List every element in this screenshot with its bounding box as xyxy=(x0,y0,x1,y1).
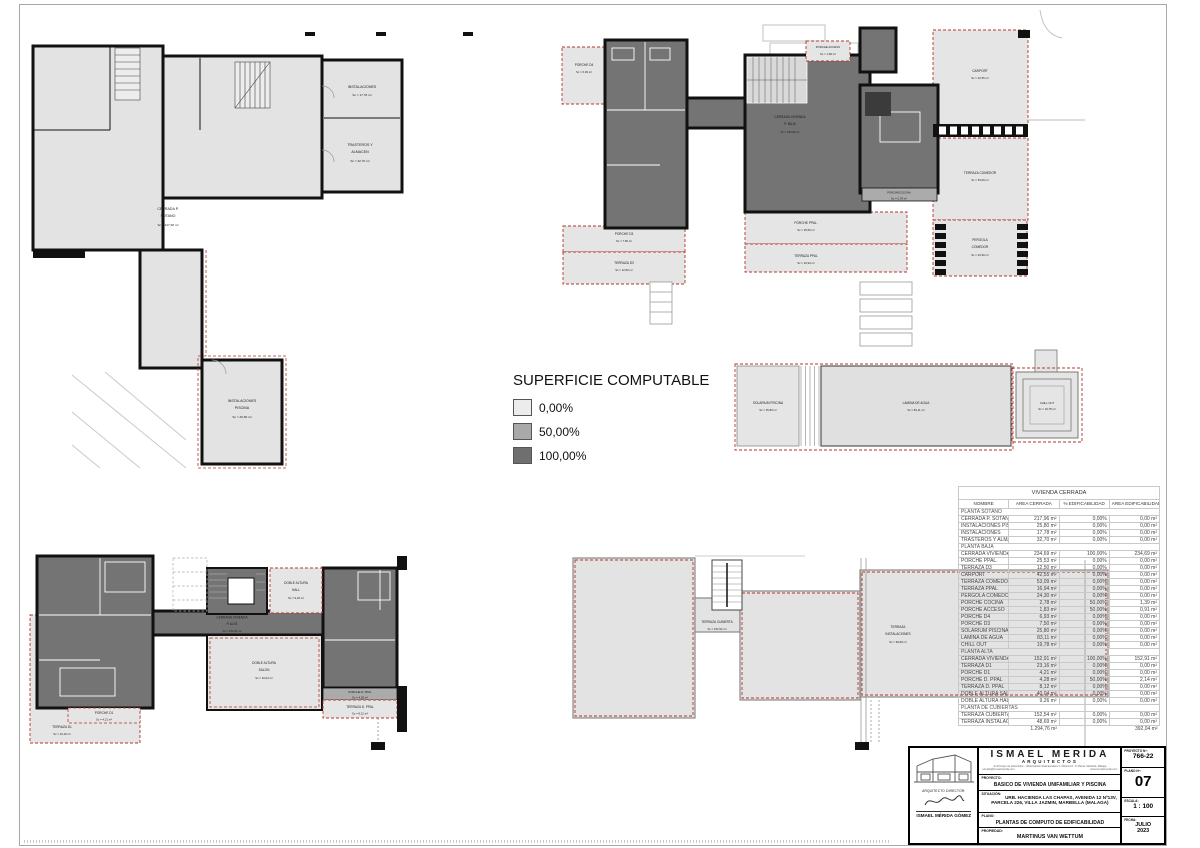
legend-title: SUPERFICIE COMPUTABLE xyxy=(513,372,709,389)
cell-edif: 0,00 m² xyxy=(1109,712,1159,719)
room-label-cerrada-sotano: CERRADA P. SOTANO Sc = 217,96 m² xyxy=(157,207,178,227)
cell-edif: 0,00 m² xyxy=(1109,530,1159,537)
svg-text:TRASTEROS Y: TRASTEROS Y xyxy=(347,143,373,147)
cell-name: TERRAZA D1 xyxy=(959,663,1009,670)
legend: SUPERFICIE COMPUTABLE 0,00% 50,00% 100,0… xyxy=(513,372,709,471)
cell-name: INSTALACIONES PISCINA xyxy=(959,523,1009,530)
table-row: PORCHE COCINA 2,78 m² 50,00% 1,39 m² xyxy=(959,600,1160,607)
cell-pct: 0,00% xyxy=(1059,698,1109,705)
svg-text:TERRAZA: TERRAZA xyxy=(891,625,907,629)
pool xyxy=(735,350,1082,450)
plano-num: 07 xyxy=(1122,773,1164,790)
svg-text:Sc = 152,91 m²: Sc = 152,91 m² xyxy=(222,629,241,633)
cell-area: 24,30 m² xyxy=(1009,593,1059,600)
firm-web: www.ismaelmerida.com xyxy=(1090,768,1117,771)
col-area-cerrada: AREA CERRADA xyxy=(1009,500,1059,509)
cell-edif: 0,00 m² xyxy=(1109,663,1159,670)
table-row: PORCHE D. PPAL 4,28 m² 50,00% 2,14 m² xyxy=(959,677,1160,684)
table-row: PORCHE D4 6,93 m² 0,00% 0,00 m² xyxy=(959,614,1160,621)
svg-text:Sc = 19,78 m²: Sc = 19,78 m² xyxy=(1038,407,1056,411)
svg-text:PORCHE D1: PORCHE D1 xyxy=(95,711,114,715)
table-row: CARPORT 42,55 m² 0,00% 0,00 m² xyxy=(959,572,1160,579)
cell-pct: 0,00% xyxy=(1059,691,1109,698)
svg-text:Sc = 4,21 m²: Sc = 4,21 m² xyxy=(96,718,112,722)
svg-text:Sc = 32,70 m²: Sc = 32,70 m² xyxy=(350,159,369,163)
drawing-sheet: CERRADA P. SOTANO Sc = 217,96 m² INSTALA… xyxy=(0,0,1200,848)
svg-text:Sc = 2,78 m²: Sc = 2,78 m² xyxy=(891,197,907,201)
cell-area: 12,50 m² xyxy=(1009,565,1059,572)
svg-text:PERGOLA: PERGOLA xyxy=(972,238,988,242)
firm-email: estudio@ismaelmerida.com xyxy=(982,768,1014,771)
svg-text:Sc = 6,93 m²: Sc = 6,93 m² xyxy=(576,70,592,74)
proyecto-row: PROYECTO: BASICO DE VIVIENDA UNIFAMILIAR… xyxy=(979,775,1120,791)
cell-area: 2,78 m² xyxy=(1009,600,1059,607)
sheet-footnote-microtext xyxy=(24,840,890,843)
cell-pct: 0,00% xyxy=(1059,712,1109,719)
cell-name: TRASTEROS Y ALMACEN xyxy=(959,537,1009,544)
svg-text:PORCHE ACCESO: PORCHE ACCESO xyxy=(816,45,841,49)
cell-name: TERRAZA D3 xyxy=(959,565,1009,572)
svg-text:INSTALACIONES: INSTALACIONES xyxy=(348,85,377,89)
cell-edif: 0,00 m² xyxy=(1109,537,1159,544)
col-pct-edificabilidad: % EDIFICABILIDAD xyxy=(1059,500,1109,509)
cell-pct: 0,00% xyxy=(1059,516,1109,523)
table-row: TERRAZA INSTALACIONES 48,69 m² 0,00% 0,0… xyxy=(959,719,1160,726)
cell-area: 25,53 m² xyxy=(1009,558,1059,565)
legend-item-100: 100,00% xyxy=(513,447,709,464)
table-row: TERRAZA D3 12,50 m² 0,00% 0,00 m² xyxy=(959,565,1160,572)
cell-name: PORCHE D4 xyxy=(959,614,1009,621)
cell-pct: 0,00% xyxy=(1059,558,1109,565)
cell-name: PORCHE D3 xyxy=(959,621,1009,628)
cell-pct: 0,00% xyxy=(1059,614,1109,621)
cell-edif: 1,39 m² xyxy=(1109,600,1159,607)
table-row: TERRAZA COMEDOR 53,09 m² 0,00% 0,00 m² xyxy=(959,579,1160,586)
legend-label: 0,00% xyxy=(539,401,573,415)
cell-name: CERRADA VIVIENDA P. BAJA xyxy=(959,551,1009,558)
cell-edif: 0,91 m² xyxy=(1109,607,1159,614)
svg-text:Sc = 7,50 m²: Sc = 7,50 m² xyxy=(616,239,632,243)
cell-area: 23,16 m² xyxy=(1009,663,1059,670)
svg-text:Sc = 24,30 m²: Sc = 24,30 m² xyxy=(971,253,989,257)
svg-text:PISCINA: PISCINA xyxy=(235,406,250,410)
section-row-baja: PLANTA BAJA xyxy=(959,544,1160,551)
svg-text:DOBLE ALTURA: DOBLE ALTURA xyxy=(252,661,277,665)
cell-edif: 0,00 m² xyxy=(1109,586,1159,593)
legend-swatch-0pct xyxy=(513,399,532,416)
cell-pct: 0,00% xyxy=(1059,593,1109,600)
cell-edif: 0,00 m² xyxy=(1109,558,1159,565)
cell-pct: 0,00% xyxy=(1059,663,1109,670)
svg-text:PORCHE D3: PORCHE D3 xyxy=(615,232,634,236)
cell-name: PORCHE ACCESO xyxy=(959,607,1009,614)
cell-edif: 0,00 m² xyxy=(1109,719,1159,726)
cell-pct: 0,00% xyxy=(1059,642,1109,649)
section-name: PLANTA BAJA xyxy=(959,544,1160,551)
propiedad-label: PROPIEDAD: xyxy=(981,829,1002,833)
garden-steps xyxy=(650,282,912,346)
legend-label: 50,00% xyxy=(539,425,580,439)
legend-label: 100,00% xyxy=(539,449,586,463)
ghost-stair xyxy=(173,558,207,611)
svg-text:CHILL OUT: CHILL OUT xyxy=(1040,401,1055,405)
legend-swatch-50pct xyxy=(513,423,532,440)
cell-name: LAMINA DE AGUA xyxy=(959,635,1009,642)
svg-text:HALL: HALL xyxy=(292,588,300,592)
table-row: PORCHE PPAL. 25,53 m² 0,00% 0,00 m² xyxy=(959,558,1160,565)
situacion-label: SITUACIÓN: xyxy=(981,792,1001,796)
cell-area: 7,50 m² xyxy=(1009,621,1059,628)
architect-panel: ARQUITECTO DIRECTOR: ISMAEL MÉRIDA GÓMEZ xyxy=(910,748,979,843)
situacion-row: SITUACIÓN: URB. HACIENDA LAS CHAPAS, AVE… xyxy=(979,791,1120,813)
table-row: CERRADA VIVIENDA P. ALTA 152,91 m² 100,0… xyxy=(959,656,1160,663)
svg-text:Sc = 9,26 m²: Sc = 9,26 m² xyxy=(288,596,304,600)
svg-text:Sc = 53,09 m²: Sc = 53,09 m² xyxy=(971,178,989,182)
cell-edif: 0,00 m² xyxy=(1109,635,1159,642)
cell-edif: 0,00 m² xyxy=(1109,691,1159,698)
svg-text:PORCHE D. PPAL: PORCHE D. PPAL xyxy=(348,690,372,694)
carport-beam xyxy=(933,124,1028,137)
cell-pct: 0,00% xyxy=(1059,572,1109,579)
svg-text:DOBLE ALTURA: DOBLE ALTURA xyxy=(284,581,309,585)
proyecto-label: PROYECTO: xyxy=(981,776,1001,780)
table-row: TERRAZA D1 23,16 m² 0,00% 0,00 m² xyxy=(959,663,1160,670)
cell-pct: 0,00% xyxy=(1059,621,1109,628)
plan-alta: DOBLE ALTURA HALL Sc = 9,26 m² CERRADA V… xyxy=(25,548,445,750)
cell-pct: 0,00% xyxy=(1059,565,1109,572)
svg-text:LAMINA DE AGUA: LAMINA DE AGUA xyxy=(903,401,931,405)
computable-area-table: VIVIENDA CERRADA NOMBRE AREA CERRADA % E… xyxy=(958,486,1160,732)
cell-edif: 234,69 m² xyxy=(1109,551,1159,558)
project-info-panel: ISMAEL MERIDA ARQUITECTOS Av.Príncipe de… xyxy=(979,748,1120,843)
table-row: DOBLE ALTURA SALON 40,04 m² 0,00% 0,00 m… xyxy=(959,691,1160,698)
cell-name: TERRAZA COMEDOR xyxy=(959,579,1009,586)
cell-edif: 0,00 m² xyxy=(1109,621,1159,628)
proyecto-num: 766-22 xyxy=(1122,753,1164,760)
fireplace xyxy=(865,92,891,116)
section-row-sotano: PLANTA SOTANO xyxy=(959,509,1160,516)
table-row: INSTALACIONES 17,78 m² 0,00% 0,00 m² xyxy=(959,530,1160,537)
cell-area: 8,12 m² xyxy=(1009,684,1059,691)
architect-name: ISMAEL MÉRIDA GÓMEZ xyxy=(916,811,971,818)
cell-name: PORCHE D1 xyxy=(959,670,1009,677)
cell-edif: 0,00 m² xyxy=(1109,565,1159,572)
cell-pct: 50,00% xyxy=(1059,607,1109,614)
svg-text:CERRADA VIVIENDA: CERRADA VIVIENDA xyxy=(216,616,248,620)
table-row: PERGOLA COMEDOR 24,30 m² 0,00% 0,00 m² xyxy=(959,593,1160,600)
cell-edif: 0,00 m² xyxy=(1109,628,1159,635)
section-row-cubiertas: PLANTA DE CUBIERTAS xyxy=(959,705,1160,712)
cell-area: 6,93 m² xyxy=(1009,614,1059,621)
sheet-meta-panel: PROYECTO Nº: 766-22 PLANO Nº: 07 ESCALA:… xyxy=(1120,748,1164,843)
cell-area: 4,21 m² xyxy=(1009,670,1059,677)
cell-edif: 0,00 m² xyxy=(1109,593,1159,600)
cell-pct: 0,00% xyxy=(1059,523,1109,530)
cell-edif: 0,00 m² xyxy=(1109,698,1159,705)
total-spacer xyxy=(959,726,1009,733)
svg-text:Sc = 1,83 m²: Sc = 1,83 m² xyxy=(820,52,836,56)
svg-text:SALON: SALON xyxy=(259,668,271,672)
svg-text:PORCHE/COCINA: PORCHE/COCINA xyxy=(887,191,911,195)
plano-row: PLANO: PLANTAS DE COMPUTO DE EDIFICABILI… xyxy=(979,813,1120,828)
svg-text:TERRAZA D3: TERRAZA D3 xyxy=(614,261,634,265)
cell-name: TERRAZA PPAL xyxy=(959,586,1009,593)
cell-area: 32,70 m² xyxy=(1009,537,1059,544)
cell-pct: 0,00% xyxy=(1059,579,1109,586)
wall-stubs xyxy=(855,742,869,750)
propiedad-row: PROPIEDAD: MARTINUS VAN WETTUM xyxy=(979,828,1120,843)
table-row: TERRAZA CUBIERTA 152,54 m² 0,00% 0,00 m² xyxy=(959,712,1160,719)
table-row: PORCHE D1 4,21 m² 0,00% 0,00 m² xyxy=(959,670,1160,677)
cell-edif: 152,91 m² xyxy=(1109,656,1159,663)
cell-edif: 0,00 m² xyxy=(1109,684,1159,691)
cell-area: 9,26 m² xyxy=(1009,698,1059,705)
legend-swatch-100pct xyxy=(513,447,532,464)
cell-name: PORCHE PPAL. xyxy=(959,558,1009,565)
cell-area: 152,54 m² xyxy=(1009,712,1059,719)
table-row: PORCHE ACCESO 1,83 m² 50,00% 0,91 m² xyxy=(959,607,1160,614)
svg-text:Sc = 4,28 m²: Sc = 4,28 m² xyxy=(352,696,368,700)
cell-name: TERRAZA CUBIERTA xyxy=(959,712,1009,719)
table-row: CERRADA P. SOTANO 217,96 m² 0,00% 0,00 m… xyxy=(959,516,1160,523)
legend-item-0: 0,00% xyxy=(513,399,709,416)
stairs-icon xyxy=(207,568,267,614)
svg-text:P. BAJA: P. BAJA xyxy=(784,122,796,126)
svg-text:PORCHE PPAL.: PORCHE PPAL. xyxy=(794,221,817,225)
cell-name: PERGOLA COMEDOR xyxy=(959,593,1009,600)
svg-text:Sc = 217,96 m²: Sc = 217,96 m² xyxy=(157,223,178,227)
total-area-edificabilidad: 392,04 m² xyxy=(1109,726,1159,733)
plano-value: PLANTAS DE COMPUTO DE EDIFICABILIDAD xyxy=(979,820,1120,826)
svg-text:SOLARIUM PISCINA: SOLARIUM PISCINA xyxy=(753,401,784,405)
cell-pct: 100,00% xyxy=(1059,656,1109,663)
svg-text:TERRAZA D1: TERRAZA D1 xyxy=(52,725,72,729)
title-block: ARQUITECTO DIRECTOR: ISMAEL MÉRIDA GÓMEZ… xyxy=(908,746,1166,845)
stairs-icon xyxy=(747,57,807,103)
svg-text:Sc = 23,16 m²: Sc = 23,16 m² xyxy=(53,732,71,736)
room-label-pergola: PERGOLA COMEDOR Sc = 24,30 m² xyxy=(971,238,989,257)
plan-sotano: CERRADA P. SOTANO Sc = 217,96 m² INSTALA… xyxy=(20,28,500,470)
porche-acceso-area xyxy=(806,41,850,61)
svg-text:SOTANO: SOTANO xyxy=(161,214,176,218)
svg-text:Sc = 25,80 m²: Sc = 25,80 m² xyxy=(232,415,251,419)
legend-item-50: 50,00% xyxy=(513,423,709,440)
svg-text:Sc = 25,53 m²: Sc = 25,53 m² xyxy=(797,228,815,232)
cell-pct: 0,00% xyxy=(1059,684,1109,691)
cell-area: 48,69 m² xyxy=(1009,719,1059,726)
svg-text:TERRAZA PPAL: TERRAZA PPAL xyxy=(794,254,818,258)
svg-text:Sc = 8,12 m²: Sc = 8,12 m² xyxy=(352,712,368,716)
cell-edif: 0,00 m² xyxy=(1109,579,1159,586)
stairs-icon xyxy=(712,560,742,610)
svg-text:Sc = 234,69 m²: Sc = 234,69 m² xyxy=(780,130,799,134)
svg-text:CERRADA P.: CERRADA P. xyxy=(157,207,178,211)
svg-text:CARPORT: CARPORT xyxy=(972,69,988,73)
svg-text:Sc = 17,78 m²: Sc = 17,78 m² xyxy=(352,93,371,97)
cell-name: INSTALACIONES xyxy=(959,530,1009,537)
fecha-year: 2023 xyxy=(1122,828,1164,834)
table-row: DOBLE ALTURA HALL 9,26 m² 0,00% 0,00 m² xyxy=(959,698,1160,705)
cell-edif: 0,00 m² xyxy=(1109,523,1159,530)
house-sketch-icon xyxy=(913,750,975,786)
firm-logo-row: ISMAEL MERIDA ARQUITECTOS Av.Príncipe de… xyxy=(979,748,1120,775)
cell-area: 42,55 m² xyxy=(1009,572,1059,579)
cell-pct: 0,00% xyxy=(1059,628,1109,635)
svg-text:INSTALACIONES: INSTALACIONES xyxy=(885,632,910,636)
cell-area: 40,04 m² xyxy=(1009,691,1059,698)
table-title: VIVIENDA CERRADA xyxy=(959,487,1160,500)
salon-area xyxy=(207,635,322,710)
proyecto-value: BASICO DE VIVIENDA UNIFAMILIAR Y PISCINA xyxy=(979,782,1120,788)
cell-name: DOBLE ALTURA HALL xyxy=(959,698,1009,705)
cell-area: 25,80 m² xyxy=(1009,523,1059,530)
svg-text:CERRADA VIVIENDA: CERRADA VIVIENDA xyxy=(774,115,806,119)
plano-label: PLANO: xyxy=(981,814,994,818)
area-table-panel: VIVIENDA CERRADA NOMBRE AREA CERRADA % E… xyxy=(958,486,1160,732)
cell-area: 16,94 m² xyxy=(1009,586,1059,593)
cell-pct: 0,00% xyxy=(1059,530,1109,537)
cell-name: PORCHE D. PPAL xyxy=(959,677,1009,684)
cell-area: 234,69 m² xyxy=(1009,551,1059,558)
cell-name: CERRADA P. SOTANO xyxy=(959,516,1009,523)
svg-text:TERRAZA COMEDOR: TERRAZA COMEDOR xyxy=(964,171,997,175)
carport-corner-wall xyxy=(1018,30,1030,38)
svg-text:Sc = 83,11 m²: Sc = 83,11 m² xyxy=(907,408,924,412)
escala-cell: ESCALA: 1 : 100 xyxy=(1122,798,1164,817)
col-nombre: NOMBRE xyxy=(959,500,1009,509)
cell-area: 25,80 m² xyxy=(1009,628,1059,635)
cell-pct: 0,00% xyxy=(1059,635,1109,642)
cell-name: CERRADA VIVIENDA P. ALTA xyxy=(959,656,1009,663)
table-title-row: VIVIENDA CERRADA xyxy=(959,487,1160,500)
cell-pct: 100,00% xyxy=(1059,551,1109,558)
col-area-edificabilidad: AREA EDIFICABILIDAD xyxy=(1109,500,1159,509)
cell-name: TERRAZA INSTALACIONES xyxy=(959,719,1009,726)
svg-text:TERRAZA D. PPAL: TERRAZA D. PPAL xyxy=(346,705,374,709)
cell-name: TERRAZA D. PPAL xyxy=(959,684,1009,691)
svg-text:PORCHE D4: PORCHE D4 xyxy=(575,63,594,67)
sotano-walls xyxy=(33,46,402,464)
cell-area: 152,91 m² xyxy=(1009,656,1059,663)
cell-pct: 50,00% xyxy=(1059,600,1109,607)
cell-area: 1,83 m² xyxy=(1009,607,1059,614)
total-area-cerrada: 1.294,76 m² xyxy=(1009,726,1059,733)
cell-pct: 0,00% xyxy=(1059,719,1109,726)
table-row: SOLARIUM PISCINA 25,80 m² 0,00% 0,00 m² xyxy=(959,628,1160,635)
cell-edif: 0,00 m² xyxy=(1109,642,1159,649)
fecha-cell: FECHA: JULIO 2023 xyxy=(1122,817,1164,841)
cell-name: SOLARIUM PISCINA xyxy=(959,628,1009,635)
svg-text:COMEDOR: COMEDOR xyxy=(972,245,989,249)
cell-edif: 0,00 m² xyxy=(1109,670,1159,677)
svg-text:Sc = 48,69 m²: Sc = 48,69 m² xyxy=(889,640,907,644)
svg-text:Sc = 12,50 m²: Sc = 12,50 m² xyxy=(615,268,633,272)
situacion-line2: PARCELA 226, VILLA JAZMIN, MARBELLA (MAL… xyxy=(979,800,1120,805)
firm-links: estudio@ismaelmerida.com www.ismaelmerid… xyxy=(979,768,1120,771)
cell-pct: 0,00% xyxy=(1059,670,1109,677)
proyecto-num-cell: PROYECTO Nº: 766-22 xyxy=(1122,748,1164,768)
table-total-row: 1.294,76 m² 392,04 m² xyxy=(959,726,1160,733)
table-row: TRASTEROS Y ALMACEN 32,70 m² 0,00% 0,00 … xyxy=(959,537,1160,544)
total-spacer xyxy=(1059,726,1109,733)
ground-hatch xyxy=(72,372,186,468)
cell-edif: 0,00 m² xyxy=(1109,516,1159,523)
svg-text:Sc = 152,54 m²: Sc = 152,54 m² xyxy=(707,627,726,631)
cell-edif: 0,00 m² xyxy=(1109,614,1159,621)
cell-area: 17,78 m² xyxy=(1009,530,1059,537)
cell-edif: 2,14 m² xyxy=(1109,677,1159,684)
section-row-alta: PLANTA ALTA xyxy=(959,649,1160,656)
table-row: LAMINA DE AGUA 83,11 m² 0,00% 0,00 m² xyxy=(959,635,1160,642)
table-row: CERRADA VIVIENDA P. BAJA 234,69 m² 100,0… xyxy=(959,551,1160,558)
svg-text:INSTALACIONES: INSTALACIONES xyxy=(228,399,257,403)
cell-area: 19,78 m² xyxy=(1009,642,1059,649)
cell-name: PORCHE COCINA xyxy=(959,600,1009,607)
cell-name: CARPORT xyxy=(959,572,1009,579)
svg-text:TERRAZA CUBIERTA: TERRAZA CUBIERTA xyxy=(701,620,733,624)
svg-text:P. ALTA: P. ALTA xyxy=(227,622,239,626)
plano-num-cell: PLANO Nº: 07 xyxy=(1122,768,1164,798)
cell-edif: 0,00 m² xyxy=(1109,572,1159,579)
svg-text:Sc = 25,80 m²: Sc = 25,80 m² xyxy=(759,408,777,412)
section-name: PLANTA DE CUBIERTAS xyxy=(959,705,1160,712)
section-name: PLANTA ALTA xyxy=(959,649,1160,656)
cell-area: 83,11 m² xyxy=(1009,635,1059,642)
table-row: CHILL OUT 19,78 m² 0,00% 0,00 m² xyxy=(959,642,1160,649)
cell-area: 53,09 m² xyxy=(1009,579,1059,586)
cell-area: 4,28 m² xyxy=(1009,677,1059,684)
cell-pct: 0,00% xyxy=(1059,586,1109,593)
cell-pct: 50,00% xyxy=(1059,677,1109,684)
signature xyxy=(922,793,966,809)
svg-text:ALMACEN: ALMACEN xyxy=(351,150,369,154)
section-name: PLANTA SOTANO xyxy=(959,509,1160,516)
table-row: INSTALACIONES PISCINA 25,80 m² 0,00% 0,0… xyxy=(959,523,1160,530)
cell-area: 217,96 m² xyxy=(1009,516,1059,523)
svg-text:Sc = 42,55 m²: Sc = 42,55 m² xyxy=(971,76,989,80)
svg-text:Sc = 16,94 m²: Sc = 16,94 m² xyxy=(797,261,815,265)
cell-pct: 0,00% xyxy=(1059,537,1109,544)
table-row: TERRAZA D. PPAL 8,12 m² 0,00% 0,00 m² xyxy=(959,684,1160,691)
cell-name: DOBLE ALTURA SALON xyxy=(959,691,1009,698)
table-row: TERRAZA PPAL 16,94 m² 0,00% 0,00 m² xyxy=(959,586,1160,593)
escala-value: 1 : 100 xyxy=(1122,803,1164,810)
svg-text:Sc = 40,04 m²: Sc = 40,04 m² xyxy=(255,676,273,680)
cell-name: CHILL OUT xyxy=(959,642,1009,649)
table-row: PORCHE D3 7,50 m² 0,00% 0,00 m² xyxy=(959,621,1160,628)
propiedad-value: MARTINUS VAN WETTUM xyxy=(979,834,1120,840)
table-header-row: NOMBRE AREA CERRADA % EDIFICABILIDAD ARE… xyxy=(959,500,1160,509)
